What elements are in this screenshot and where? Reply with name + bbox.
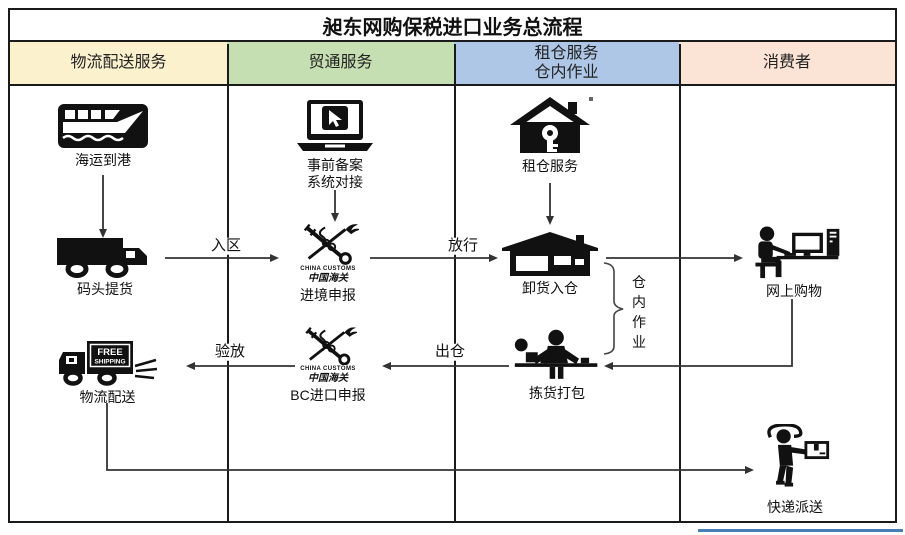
laptop-cursor-icon: [296, 100, 374, 154]
svg-text:FREE: FREE: [97, 347, 122, 358]
node-online-shopping: 网上购物: [735, 226, 853, 299]
node-pre-filing: 事前备案 系统对接: [275, 100, 395, 190]
column-divider-1: [227, 44, 229, 521]
emblem-text-cn: 中国海关: [308, 273, 348, 284]
node-dock-pickup: 码头提货: [45, 236, 165, 297]
emblem-text-cn: 中国海关: [308, 373, 348, 384]
header-consumer: 消费者: [679, 42, 895, 84]
courier-icon: [755, 424, 835, 496]
packing-station-icon: [513, 328, 601, 382]
header-logistics-service: 物流配送服务: [10, 42, 227, 84]
node-pick-and-pack: 拣货打包: [498, 328, 616, 401]
header-trade-service: 贸通服务: [227, 42, 454, 84]
edge-label-out-of-warehouse: 出仓: [433, 344, 467, 361]
flowchart-screenshot: 昶东网购保税进口业务总流程 物流配送服务 贸通服务 租仓服务 仓内作业 消费者: [0, 0, 905, 535]
edge-label-enter-zone: 入区: [209, 238, 243, 255]
china-customs-emblem: [299, 325, 357, 365]
node-bc-import-declaration: CHINA CUSTOMS 中国海关 BC进口申报: [268, 325, 388, 403]
node-sea-arrival: 海运到港: [43, 103, 163, 168]
china-customs-emblem: [297, 221, 359, 265]
emblem-text-en: CHINA CUSTOMS: [300, 366, 356, 372]
edge-label-in-warehouse-ops: 仓内作业: [631, 272, 647, 352]
node-unload-into-warehouse: 卸货入仓: [494, 229, 606, 296]
column-divider-2: [454, 44, 456, 521]
ship-icon: [57, 103, 149, 149]
computer-user-icon: [746, 226, 842, 280]
edge-label-release: 放行: [446, 238, 480, 255]
page-title: 昶东网购保税进口业务总流程: [10, 10, 895, 42]
svg-text:SHIPPING: SHIPPING: [94, 359, 125, 366]
truck-icon: [55, 236, 155, 278]
column-divider-3: [679, 44, 681, 521]
header-warehouse-service: 租仓服务 仓内作业: [454, 42, 679, 84]
column-header-row: 物流配送服务 贸通服务 租仓服务 仓内作业 消费者: [10, 42, 895, 86]
node-courier-delivery: 快递派送: [735, 424, 855, 515]
free-shipping-truck-icon: FREE SHIPPING: [59, 336, 157, 386]
house-key-icon: [506, 97, 594, 155]
emblem-text-en: CHINA CUSTOMS: [300, 266, 356, 272]
node-warehouse-rental: 租仓服务: [492, 97, 608, 174]
warehouse-icon: [502, 229, 598, 277]
node-entry-declaration: CHINA CUSTOMS 中国海关 进境申报: [268, 221, 388, 303]
node-logistics-delivery: FREE SHIPPING 物流配送: [50, 336, 165, 405]
edge-label-inspect-release: 验放: [213, 344, 247, 361]
accent-underline: [698, 529, 903, 532]
